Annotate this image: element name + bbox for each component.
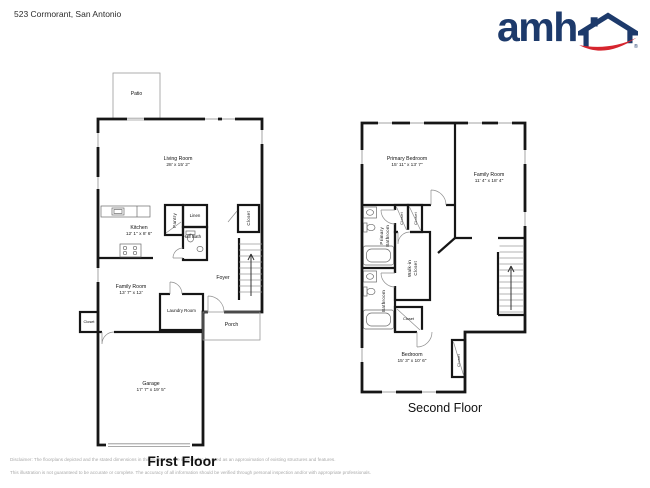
property-address: 523 Cormorant, San Antonio <box>14 9 121 19</box>
amh-logo: amh ® <box>497 11 638 56</box>
room-label-family-room: Family Room 13' 7" x 12' <box>99 284 163 298</box>
garage-door <box>106 442 192 447</box>
room-label-closet-left: Closet <box>80 319 98 324</box>
room-label-closet-a: Closet <box>395 206 408 231</box>
second-floor-label: Second Floor <box>385 401 505 415</box>
room-label-bathroom: Bathroom <box>376 282 390 320</box>
floorplan-page: 523 Cormorant, San Antonio amh ® <box>0 0 650 488</box>
room-label-walk-in-closet: Walk-in Closet <box>403 247 421 289</box>
room-label-primary-bedroom: Primary Bedroom 15' 11" x 13' 7" <box>368 156 446 170</box>
room-label-primary-bathroom: Primary Bathroom <box>376 215 393 257</box>
room-label-closet-stairs: Closet <box>238 206 259 231</box>
first-floor-label: First Floor <box>120 453 244 469</box>
room-label-closet-hall: Closet <box>395 316 422 321</box>
staircase-second-floor <box>500 246 525 312</box>
room-label-foyer: Foyer <box>204 275 242 282</box>
room-label-patio: Patio <box>113 91 160 98</box>
room-label-porch: Porch <box>203 322 260 329</box>
room-label-bedroom: Bedroom 15' 3" x 10' 6" <box>374 352 450 366</box>
room-label-garage: Garage 17' 7" x 19' 5" <box>113 381 189 395</box>
room-label-pantry: Pantry <box>165 207 183 233</box>
room-label-laundry: Laundry Room <box>160 308 203 314</box>
room-label-half-bath: Half Bath <box>182 234 202 240</box>
amh-house-icon <box>578 12 638 56</box>
room-label-closet-bedroom: Closet <box>452 346 465 374</box>
staircase-first-floor <box>239 238 262 300</box>
first-floor-plan: Patio Living Room 28' x 15' 2" Kitchen 1… <box>75 72 265 457</box>
room-label-kitchen: Kitchen 12' 1" x 8' 6" <box>108 225 170 239</box>
room-label-linen: Linen <box>183 213 207 219</box>
amh-logo-text: amh <box>497 11 577 45</box>
room-label-closet-b: Closet <box>408 206 422 231</box>
first-floor-drawing <box>75 72 265 457</box>
room-label-family-room-2: Family Room 11' 4" x 18' 4" <box>458 172 520 186</box>
registered-mark: ® <box>634 44 638 50</box>
room-label-living-room: Living Room 28' x 15' 2" <box>115 156 241 170</box>
second-floor-plan: Primary Bedroom 15' 11" x 13' 7" Family … <box>360 120 528 395</box>
